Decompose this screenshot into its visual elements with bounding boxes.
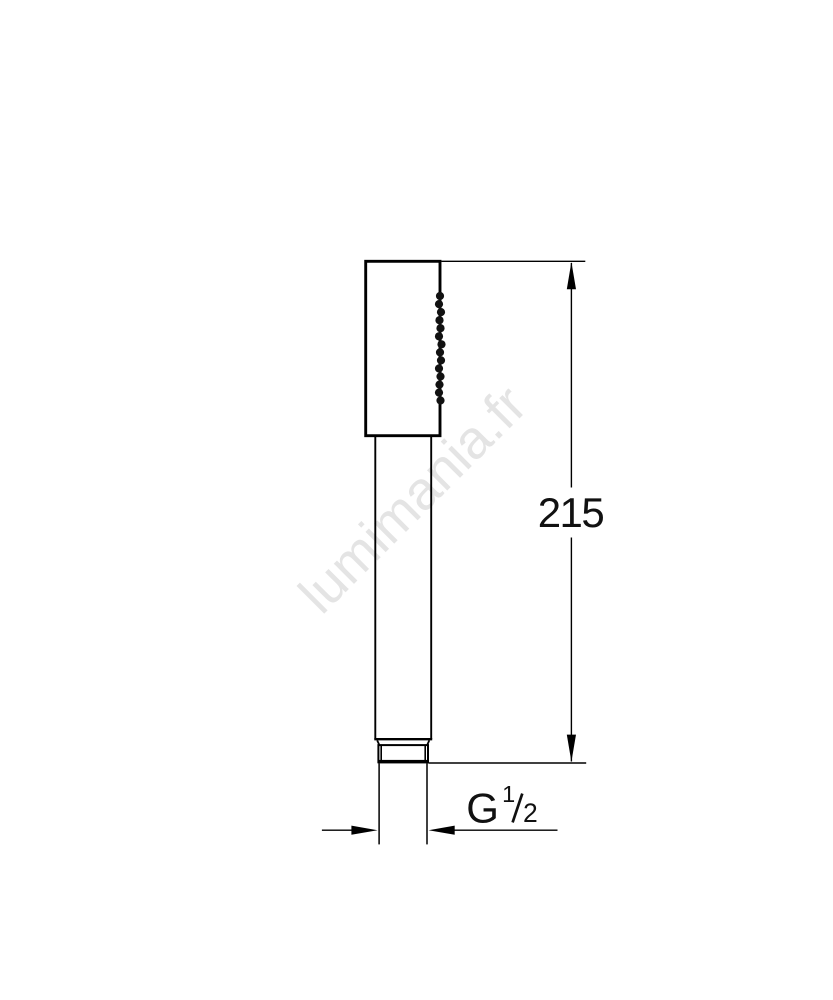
svg-text:G: G	[466, 784, 499, 831]
svg-text:2: 2	[523, 798, 538, 828]
svg-text:215: 215	[538, 489, 604, 536]
svg-text:1: 1	[502, 781, 515, 807]
